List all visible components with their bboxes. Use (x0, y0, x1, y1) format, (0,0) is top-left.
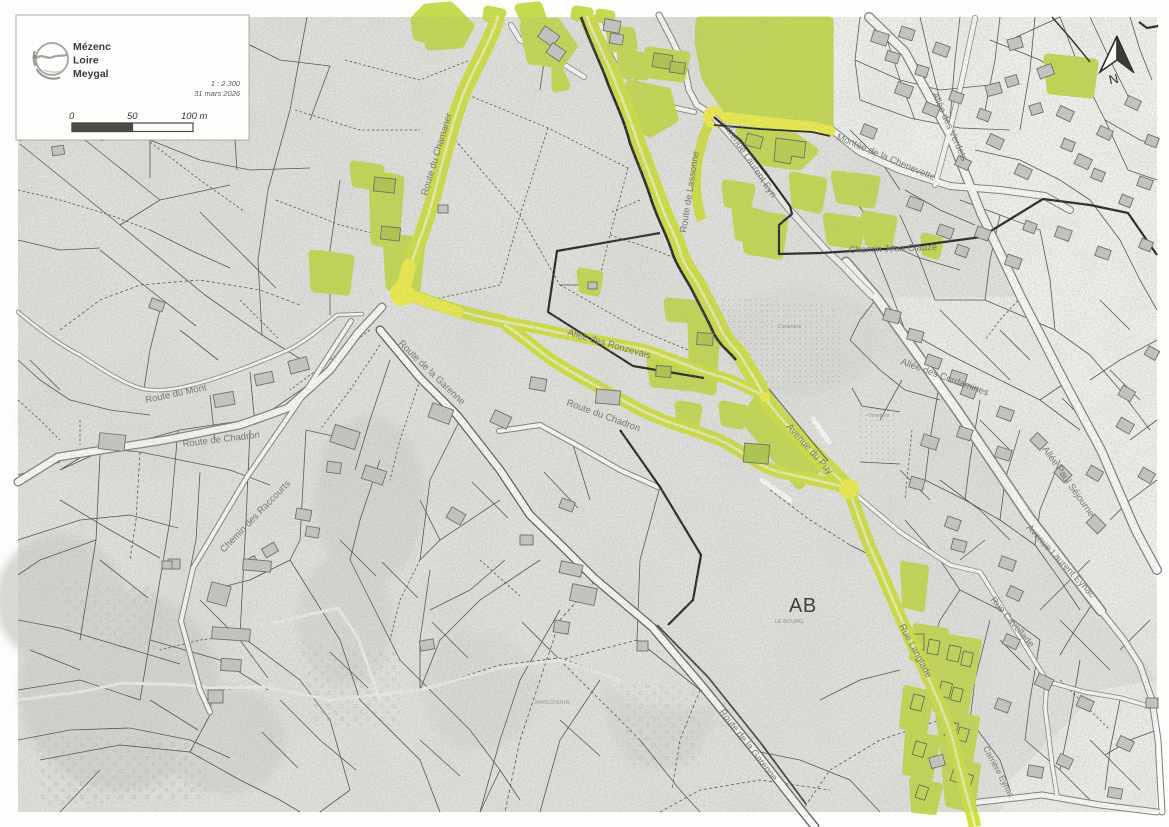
svg-text:1 : 2.300: 1 : 2.300 (211, 79, 241, 88)
svg-text:100 m: 100 m (181, 111, 207, 122)
svg-text:LE BOURG: LE BOURG (775, 619, 803, 625)
svg-text:AB: AB (789, 595, 817, 617)
svg-text:Meygal: Meygal (73, 68, 109, 80)
svg-text:Loire: Loire (73, 55, 99, 67)
svg-text:Mézenc: Mézenc (73, 41, 111, 53)
svg-text:0: 0 (69, 111, 75, 122)
svg-text:MARECHERRE: MARECHERRE (535, 700, 571, 706)
svg-text:Cimetière: Cimetière (868, 413, 890, 419)
svg-text:Cimetière: Cimetière (778, 324, 802, 330)
svg-text:31 mars 2026: 31 mars 2026 (194, 89, 241, 98)
svg-text:50: 50 (127, 111, 138, 122)
